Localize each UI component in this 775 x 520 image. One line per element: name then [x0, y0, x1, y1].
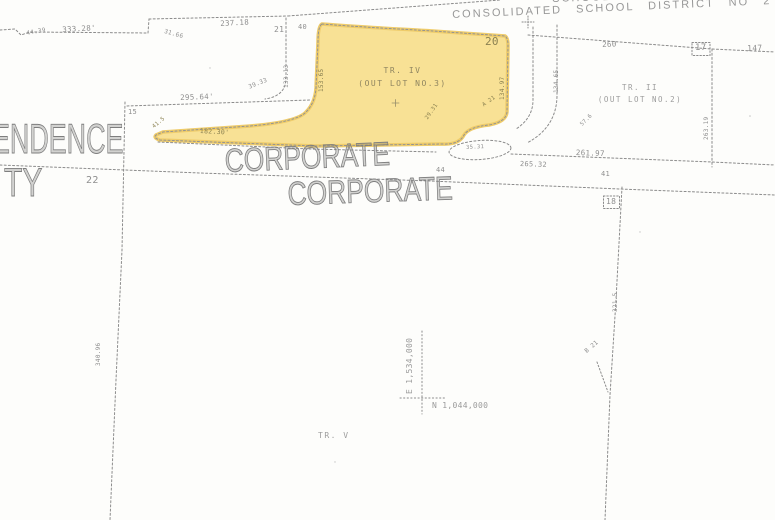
coordinate-north-label: N 1,044,000 [432, 402, 488, 410]
tract-iv-name: TR. IV [330, 64, 475, 77]
lot-number-20: 20 [485, 36, 499, 47]
tract-ii-north-line [528, 35, 775, 52]
dim-260: 260 [602, 40, 617, 48]
corporate-label-lower: CORPORATE [287, 171, 453, 210]
lot-number-40: 40 [298, 24, 307, 31]
tract-v-label: TR. V [318, 432, 350, 440]
north-boundary-mid [149, 16, 288, 19]
road-south-line [127, 100, 310, 106]
lot-number-18: 18 [606, 198, 616, 206]
dim-333-28: 333.28' [62, 24, 96, 33]
lot-number-41: 41 [601, 171, 610, 178]
corporate-label-upper: CORPORATE [224, 137, 391, 177]
tract-ii-sub: (OUT LOT NO.2) [580, 94, 700, 106]
dim-321-5: 321.5 [613, 292, 619, 312]
dim-134-97: 134.97 [500, 77, 506, 100]
east-section-line [605, 187, 622, 520]
boundary-jog [148, 19, 149, 33]
tract-iv-label: TR. IV (OUT LOT NO.3) [330, 64, 475, 90]
dim-147: 147 [747, 44, 763, 53]
b21-leader-line [597, 362, 608, 392]
dim-134-65: 134.65 [554, 70, 560, 93]
dim-237-18: 237.18 [220, 18, 249, 27]
dim-263-19: 263.19 [704, 117, 710, 140]
west-section-line [110, 102, 125, 520]
lot-number-15: 15 [128, 109, 137, 116]
plat-map: ENDENCE TY CORPORATE CORPORATE SCHOOL DI… [0, 0, 775, 520]
independence-label-partial: ENDENCE [0, 118, 123, 160]
section-number-22: 22 [86, 176, 99, 186]
lot-number-17: 17 [695, 44, 706, 53]
tract-iv-sub: (OUT LOT NO.3) [330, 77, 475, 90]
dim-153-65: 153.65 [319, 69, 325, 92]
dim-182-30: 182.30' [200, 128, 230, 136]
lot-number-44: 44 [436, 167, 445, 174]
dim-35-31: 35.31 [466, 145, 484, 151]
coordinate-east-label: E 1,534,000 [406, 338, 414, 394]
dim-265-32: 265.32 [520, 161, 547, 169]
road-east-inner [516, 27, 533, 129]
city-label-partial: TY [4, 163, 42, 203]
lot-number-21: 21 [274, 26, 284, 34]
dim-295-64: 295.64' [180, 93, 214, 102]
tract-ii-name: TR. II [580, 82, 700, 94]
dim-261-97: 261.97 [576, 149, 605, 158]
tract-ii-label: TR. II (OUT LOT NO.2) [580, 82, 700, 106]
dim-340-96: 340.96 [96, 343, 102, 366]
dim-133-13: 133.13 [284, 65, 290, 88]
